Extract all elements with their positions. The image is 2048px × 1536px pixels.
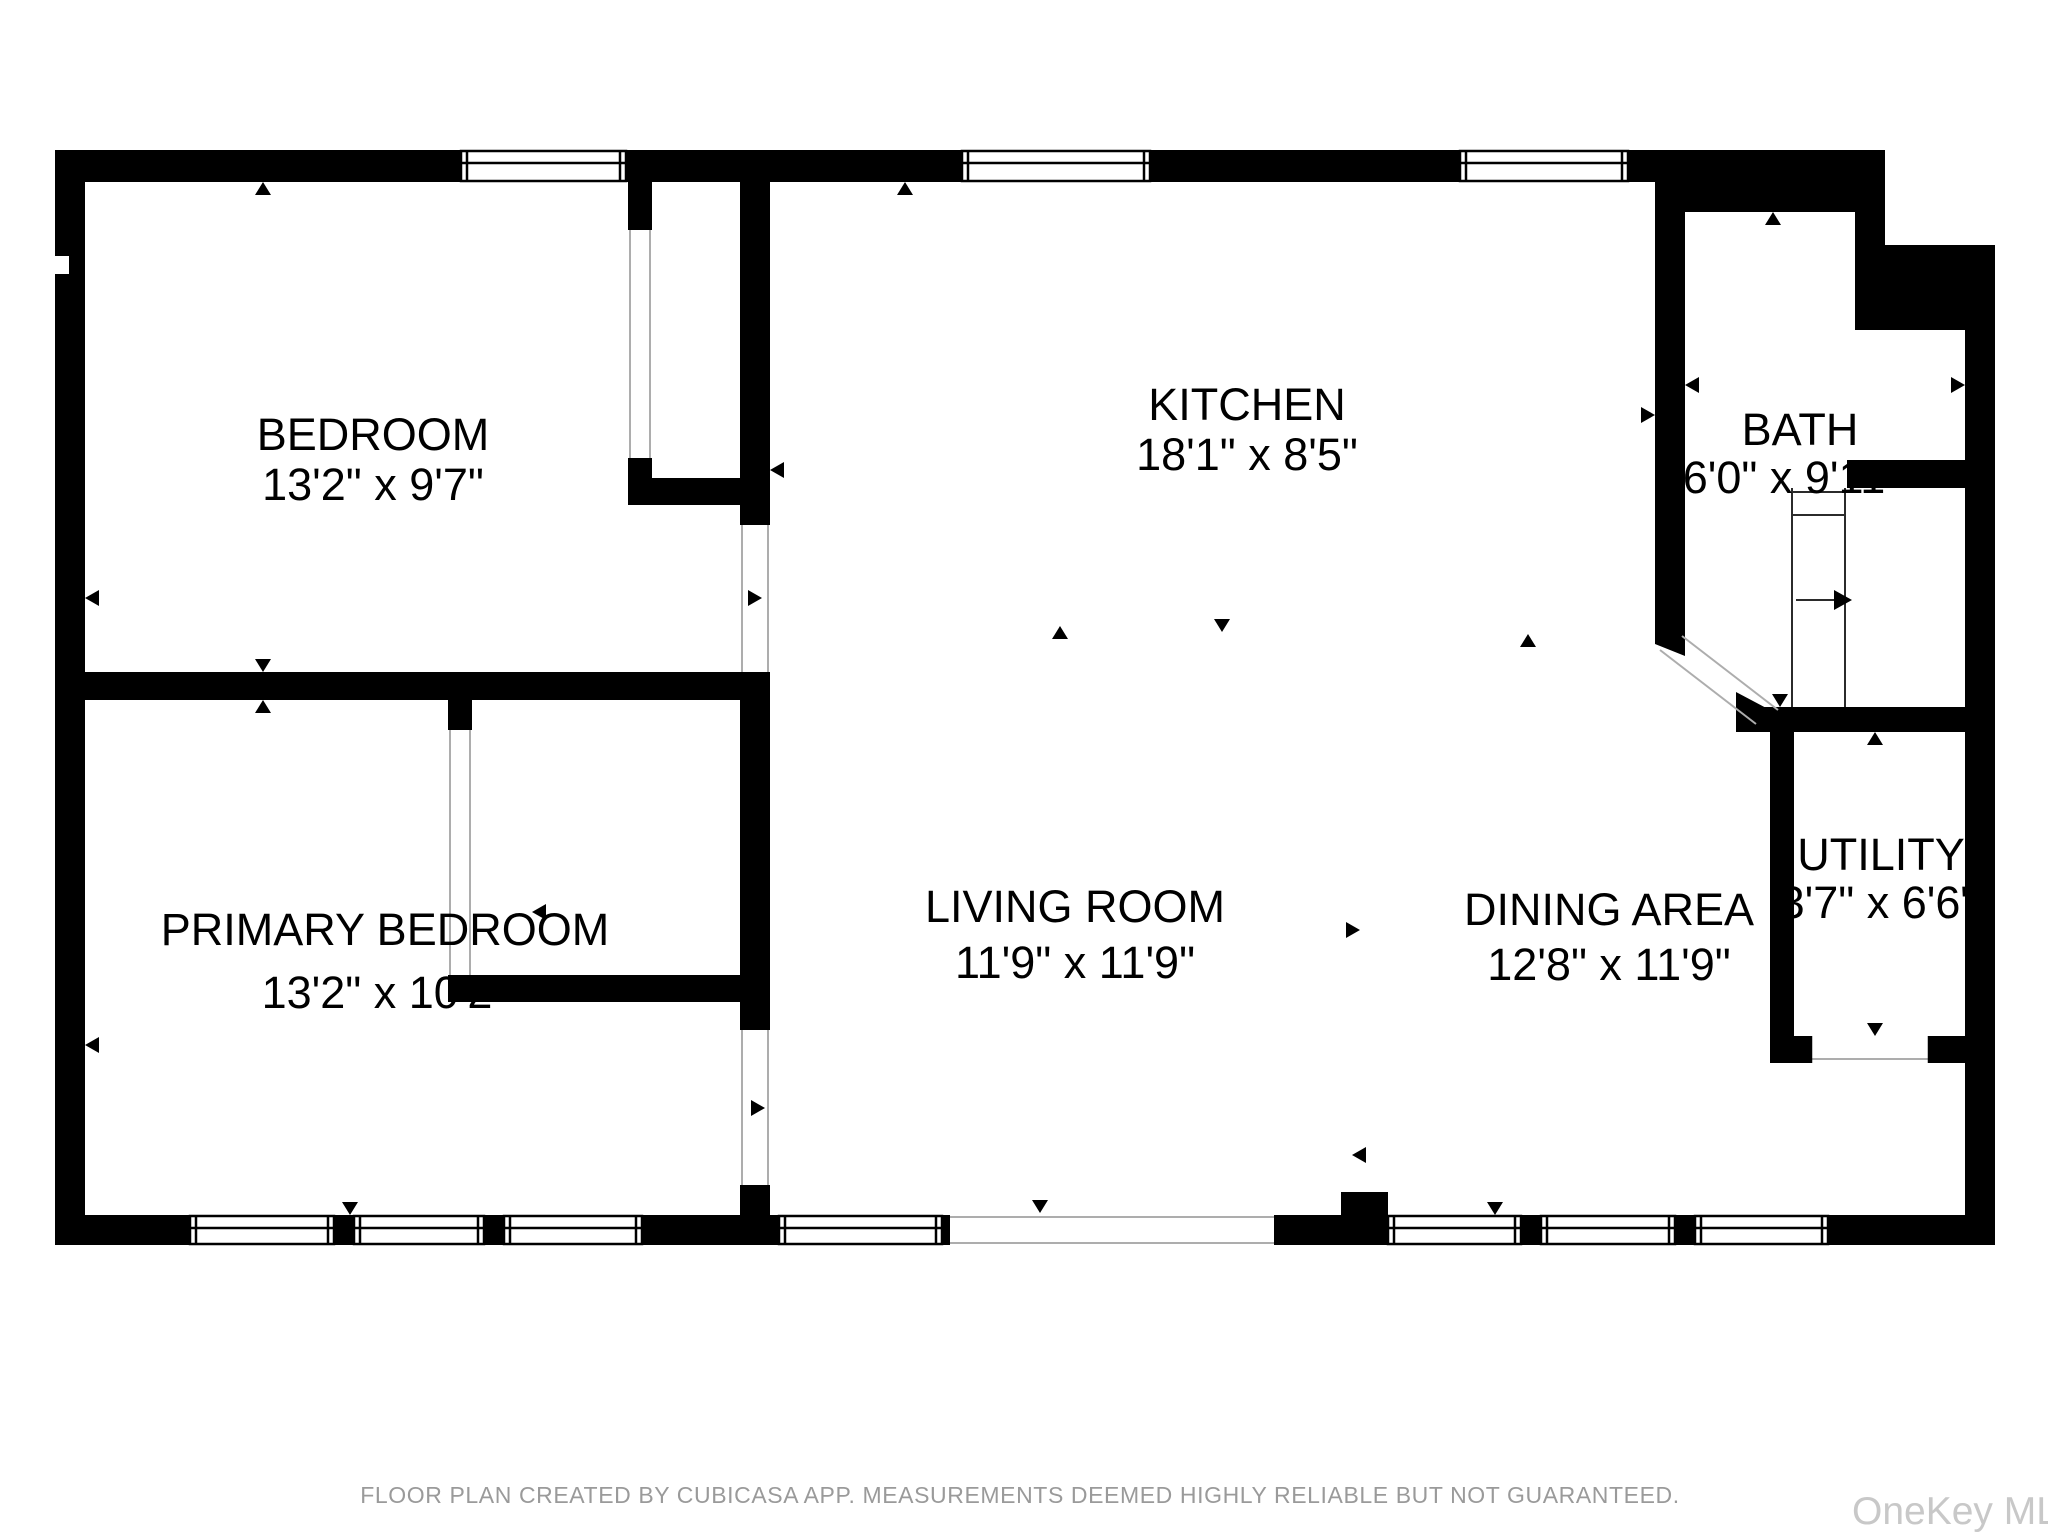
door-marker-down-icon <box>1487 1202 1503 1215</box>
room-label-living-room: LIVING ROOM <box>925 881 1225 932</box>
room-label-kitchen: KITCHEN <box>1148 379 1346 430</box>
door-marker-down-icon <box>1772 694 1788 707</box>
room-dims-primary-bedroom: 13'2" x 10'2" <box>262 967 509 1018</box>
door-marker-up-icon <box>1520 634 1536 647</box>
room-label-bedroom: BEDROOM <box>257 409 490 460</box>
room-label-dining-area: DINING AREA <box>1464 884 1754 935</box>
window <box>1541 1216 1675 1244</box>
room-dims-living-room: 11'9" x 11'9" <box>955 937 1195 988</box>
door-marker-right-icon <box>748 590 762 606</box>
door-marker-left-icon <box>1352 1147 1366 1163</box>
door-marker-right-icon <box>1641 407 1655 423</box>
door-marker-up-icon <box>1052 626 1068 639</box>
room-label-bath: BATH <box>1742 404 1859 455</box>
window <box>1388 1216 1521 1244</box>
door-marker-up-icon <box>255 700 271 713</box>
window <box>461 151 626 181</box>
door-marker-left-icon <box>85 590 99 606</box>
door-marker-down-icon <box>1867 1023 1883 1036</box>
door-marker-right-icon <box>751 1100 765 1116</box>
door-marker-up-icon <box>1765 212 1781 225</box>
door-marker-right-icon <box>1346 922 1360 938</box>
window <box>1810 1036 1930 1063</box>
door-marker-left-icon <box>85 1037 99 1053</box>
window <box>1460 151 1628 181</box>
room-label-primary-bedroom: PRIMARY BEDROOM <box>161 904 609 955</box>
window <box>504 1216 642 1244</box>
window <box>190 1216 334 1244</box>
door-marker-up-icon <box>255 182 271 195</box>
door-marker-down-icon <box>255 659 271 672</box>
window <box>779 1216 942 1244</box>
door-marker-left-icon <box>1685 377 1699 393</box>
door-marker-down-icon <box>342 1202 358 1215</box>
staircase <box>1792 488 1852 707</box>
disclaimer-text: FLOOR PLAN CREATED BY CUBICASA APP. MEAS… <box>360 1482 1680 1508</box>
interior-walls <box>55 182 1995 1245</box>
bath-south-wall <box>1847 460 1995 488</box>
door-marker-up-icon <box>897 182 913 195</box>
room-dims-kitchen: 18'1" x 8'5" <box>1136 429 1358 480</box>
door-marker-up-icon <box>1867 732 1883 745</box>
window <box>1695 1216 1828 1244</box>
room-label-utility: UTILITY <box>1797 829 1965 880</box>
door-marker-left-icon <box>770 462 784 478</box>
window <box>962 151 1150 181</box>
floor-plan: 6'0" x 9'11" BEDROOM 13'2" x 9'7" KITCHE… <box>0 0 2048 1536</box>
window <box>354 1216 484 1244</box>
watermark: OneKey MLS <box>1852 1490 2048 1533</box>
door-openings <box>450 230 1778 1245</box>
door-marker-down-icon <box>1032 1200 1048 1213</box>
room-dims-utility: 3'7" x 6'6" <box>1780 877 1977 928</box>
stair-direction-arrow-icon <box>1834 590 1852 610</box>
room-dims-dining-area: 12'8" x 11'9" <box>1487 939 1730 990</box>
door-marker-down-icon <box>1214 619 1230 632</box>
room-dims-bedroom: 13'2" x 9'7" <box>262 459 484 510</box>
door-marker-right-icon <box>1951 377 1965 393</box>
